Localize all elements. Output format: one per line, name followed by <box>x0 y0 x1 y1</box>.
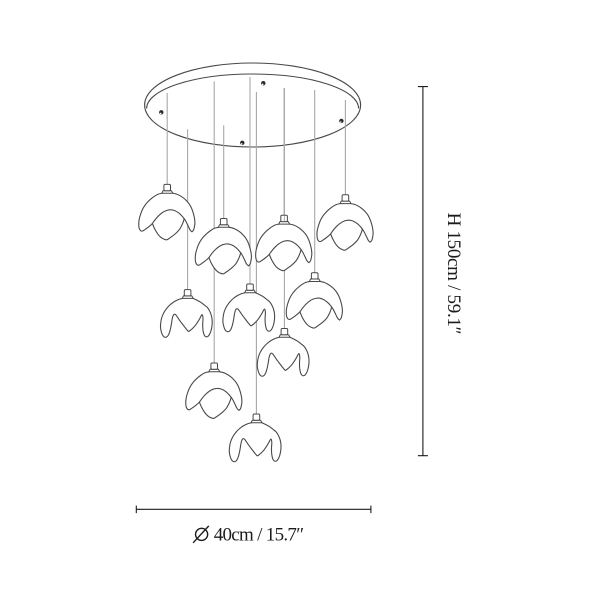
svg-text:40cm / 15.7″: 40cm / 15.7″ <box>214 524 304 545</box>
svg-text:H 150cm / 59.1″: H 150cm / 59.1″ <box>443 213 464 335</box>
